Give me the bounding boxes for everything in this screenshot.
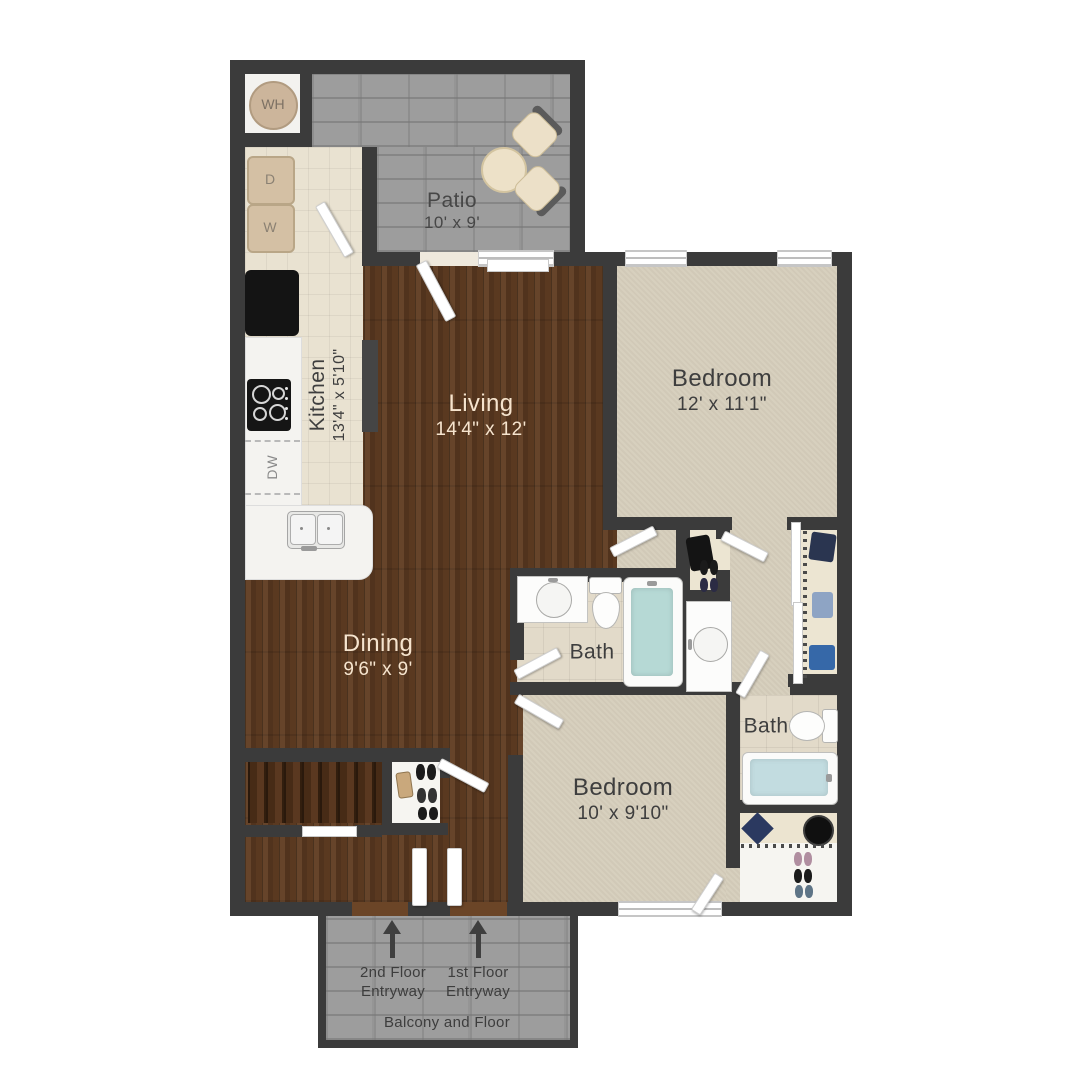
first-floor-entry-label: 1st Floor Entryway: [446, 963, 510, 1001]
burner: [272, 387, 285, 400]
wall-segment: [716, 570, 730, 603]
wall-segment: [230, 60, 585, 74]
hanging-clothes: [812, 592, 833, 618]
room-dims: 13'4" x 5'10": [330, 349, 349, 442]
shoe: [428, 788, 437, 803]
room-dims: 12' x 11'1": [672, 394, 772, 417]
sink-basin: [317, 514, 343, 545]
up-arrow-stem: [390, 933, 395, 958]
bathtub-basin: [631, 588, 673, 676]
closet-hanger-rod: [741, 844, 835, 848]
wall-segment: [382, 823, 448, 835]
room-name: Bedroom: [573, 774, 673, 803]
cooktop-knob: [285, 397, 288, 400]
tub-faucet: [826, 774, 832, 782]
closet-sliding-door: [793, 602, 803, 684]
bedroom2-label: Bedroom 10' x 9'10": [573, 774, 673, 826]
balcony-wall-bottom: [318, 1040, 578, 1048]
bath1-sink: [536, 582, 572, 618]
shoe: [429, 807, 438, 820]
kitchen-label: Kitchen 13'4" x 5'10": [305, 349, 349, 442]
burner: [269, 404, 286, 421]
up-arrow-icon: [469, 920, 487, 934]
closet-hanger-rod: [803, 530, 807, 678]
entry-door-opening-left: [352, 902, 408, 916]
shoe: [804, 869, 812, 883]
shoe: [416, 764, 425, 780]
balcony-wall-left: [318, 908, 326, 1048]
wall-segment: [617, 517, 732, 530]
room-name: Bedroom: [672, 365, 772, 394]
cooktop-knob: [285, 417, 288, 420]
bedroom1-window-left: [625, 250, 687, 267]
patio-label: Patio 10' x 9': [424, 188, 480, 234]
entry-line2: Entryway: [446, 982, 510, 1001]
wall-segment: [230, 748, 448, 762]
cooktop-knob: [285, 387, 288, 390]
wall-segment: [726, 695, 740, 812]
bath1-faucet: [548, 578, 558, 582]
stair-railing: [302, 826, 357, 837]
wall-segment: [603, 266, 617, 530]
patio-sliding-door-panel: [487, 259, 549, 272]
room-name: Bath: [570, 639, 615, 664]
balcony-wall-right: [570, 908, 578, 1048]
closet-sliding-door: [791, 522, 801, 606]
room-name: Kitchen: [305, 349, 330, 442]
dryer-label: D: [265, 171, 275, 187]
dining-label: Dining 9'6" x 9': [343, 630, 413, 682]
room-dims: 14'4" x 12': [435, 419, 526, 442]
burner: [253, 407, 267, 421]
tub-faucet: [647, 581, 657, 586]
sink-drain: [300, 527, 303, 530]
room-name: Dining: [343, 630, 413, 659]
bathtub-basin: [750, 759, 828, 796]
shoe: [427, 764, 436, 780]
entry-door-2nd: [412, 848, 427, 906]
burner: [252, 385, 271, 404]
shoe: [795, 885, 803, 898]
wall-segment: [382, 755, 392, 827]
sink-drain: [327, 527, 330, 530]
hall-faucet: [688, 639, 692, 650]
hanging-clothes: [809, 645, 835, 670]
entry-door-1st: [447, 848, 462, 906]
shoe: [710, 578, 718, 592]
bedroom1-window-right: [777, 250, 832, 267]
dishwasher-label: DW: [264, 454, 280, 479]
wall-segment: [355, 825, 382, 837]
wall-segment: [837, 252, 852, 916]
shoe: [417, 788, 426, 803]
room-name: Bath: [744, 713, 789, 738]
refrigerator: [245, 270, 299, 336]
closet-item-bag: [803, 815, 834, 846]
staircase: [248, 762, 382, 823]
wall-segment: [245, 825, 302, 837]
up-arrow-stem: [476, 933, 481, 958]
bedroom1-label: Bedroom 12' x 11'1": [672, 365, 772, 417]
entry-line1: 1st Floor: [446, 963, 510, 982]
wall-segment: [570, 60, 585, 266]
bath1-label: Bath: [570, 639, 615, 664]
room-dims: 9'6" x 9': [343, 659, 413, 682]
entry-line2: Entryway: [360, 982, 426, 1001]
kitchen-peninsula-wall: [362, 340, 378, 432]
dishwasher-divider: [245, 440, 300, 442]
up-arrow-icon: [383, 920, 401, 934]
shoe: [804, 852, 812, 866]
wall-segment: [726, 813, 740, 868]
room-dims: 10' x 9'10": [573, 803, 673, 826]
room-name: Living: [435, 390, 526, 419]
room-name: Patio: [424, 188, 480, 213]
sink-faucet: [301, 546, 317, 551]
shoe: [710, 560, 718, 575]
toilet-bowl: [789, 711, 825, 741]
shoe: [418, 807, 427, 820]
living-label: Living 14'4" x 12': [435, 390, 526, 442]
bath2-label: Bath: [744, 713, 789, 738]
wall-segment: [230, 133, 312, 147]
wall-segment: [508, 755, 523, 902]
sink-basin: [290, 514, 316, 545]
balcony-label: Balcony and Floor: [384, 1013, 510, 1032]
shoe: [700, 560, 708, 575]
shoe: [794, 869, 802, 883]
second-floor-entry-label: 2nd Floor Entryway: [360, 963, 426, 1001]
shoe: [794, 852, 802, 866]
hanging-clothes: [808, 531, 837, 562]
entry-line1: 2nd Floor: [360, 963, 426, 982]
shoe: [805, 885, 813, 898]
dishwasher-divider: [245, 493, 300, 495]
wall-segment: [362, 147, 377, 266]
shoe: [700, 578, 708, 592]
wall-segment: [230, 60, 245, 916]
floor-plan: DW WH D W: [0, 0, 1080, 1080]
room-dims: 10' x 9': [424, 213, 480, 233]
hall-sink: [693, 627, 728, 662]
cooktop-knob: [285, 407, 288, 410]
washer-label: W: [263, 219, 276, 235]
water-heater-label: WH: [261, 96, 284, 112]
